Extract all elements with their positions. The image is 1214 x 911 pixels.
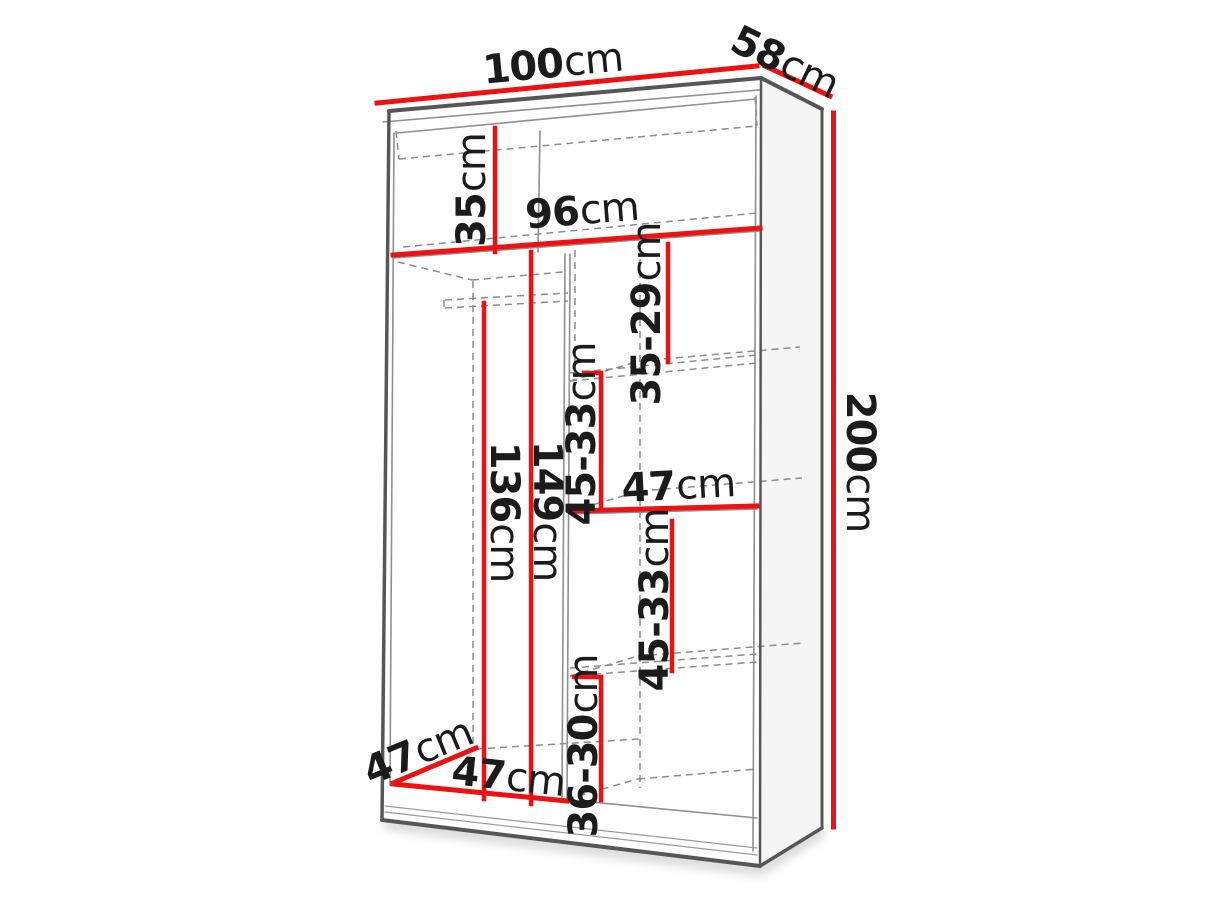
dim-label-shelf-width: 47cm bbox=[620, 460, 736, 512]
dim-label-height: 200cm bbox=[837, 392, 883, 532]
wardrobe-dimension-diagram: 100cm 58cm 200cm 35cm 96cm 35-29cm 45-33… bbox=[0, 0, 1214, 911]
dim-label-right-upper-compartment: 35-29cm bbox=[624, 223, 670, 406]
dim-label-top-width: 100cm bbox=[481, 34, 625, 93]
dim-label-interior-width: 96cm bbox=[524, 184, 641, 239]
side-panel bbox=[760, 78, 822, 866]
dim-label-hanging-height: 136cm bbox=[481, 442, 527, 582]
dim-label-top-compartment: 35cm bbox=[449, 133, 495, 247]
edge-right-front bbox=[760, 78, 761, 866]
dim-label-right-lower-compartment: 45-33cm bbox=[632, 509, 678, 692]
dim-label-right-bottom-compartment: 36-30cm bbox=[561, 655, 607, 838]
diagram-canvas: 100cm 58cm 200cm 35cm 96cm 35-29cm 45-33… bbox=[0, 0, 1214, 911]
dim-label-interior-height: 149cm bbox=[524, 441, 570, 581]
